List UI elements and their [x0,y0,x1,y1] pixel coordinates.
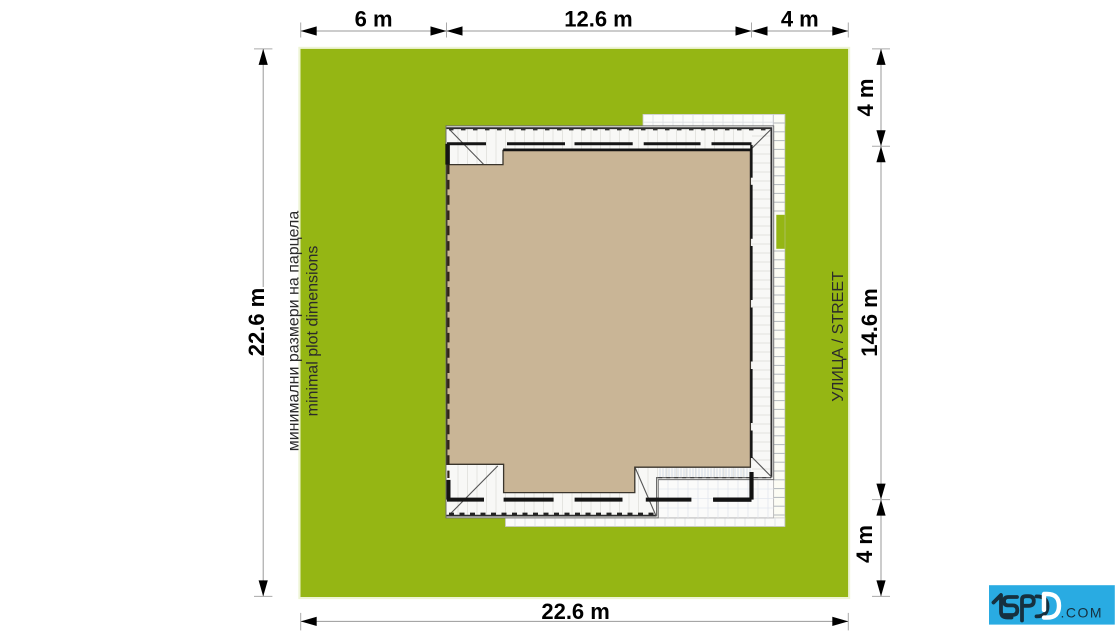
svg-text:22.6 m: 22.6 m [541,599,610,624]
svg-text:14.6 m: 14.6 m [857,288,882,357]
svg-text:4 m: 4 m [781,6,819,31]
svg-text:22.6 m: 22.6 m [244,288,269,357]
svg-text:.COM: .COM [1061,605,1104,621]
svg-text:6 m: 6 m [355,6,393,31]
svg-text:minimal plot dimensions: minimal plot dimensions [305,246,322,417]
svg-text:4 m: 4 m [853,79,878,117]
svg-text:минимални размери на парцела: минимални размери на парцела [286,211,303,452]
svg-text:УЛИЦА / STREET: УЛИЦА / STREET [830,271,847,402]
svg-text:12.6 m: 12.6 m [564,6,633,31]
svg-text:4 m: 4 m [852,525,877,563]
